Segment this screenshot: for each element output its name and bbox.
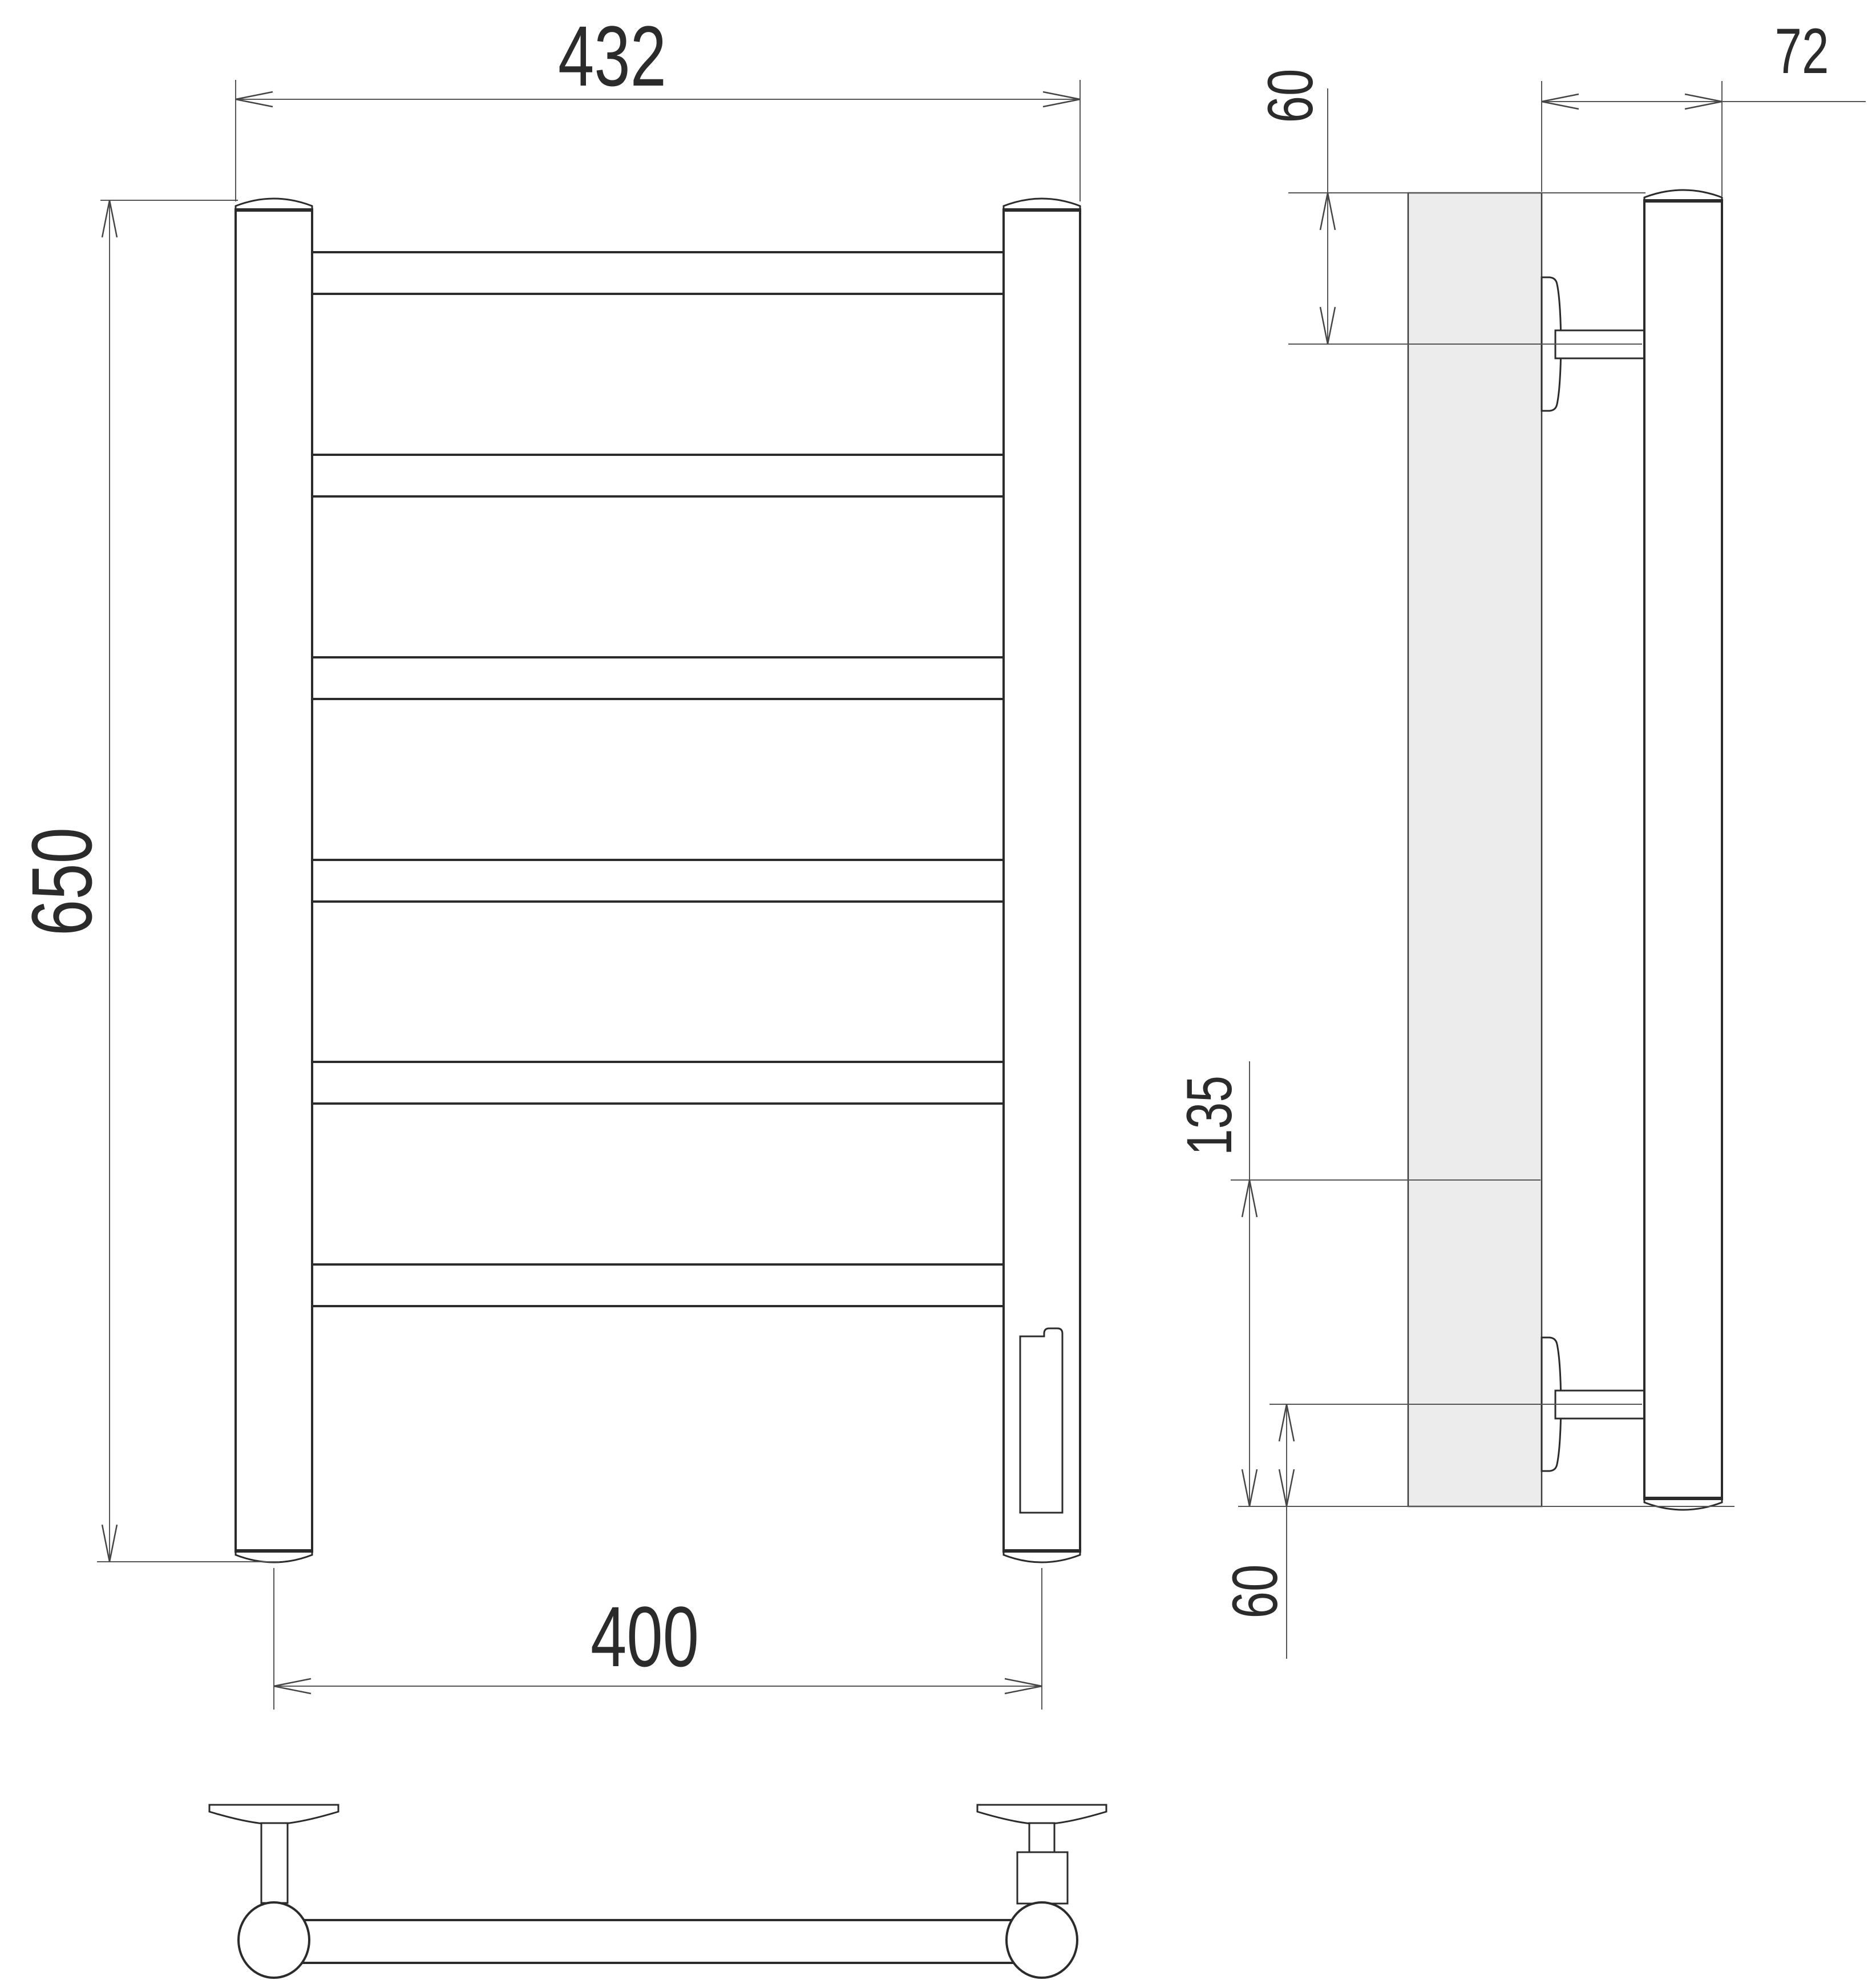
rung-5: [312, 1062, 1004, 1104]
bottom-view: [209, 1805, 1106, 1978]
rungs: [312, 252, 1004, 1306]
bottom-control-box: [1017, 1852, 1068, 1904]
bottom-left-flange: [209, 1805, 338, 1824]
rung-2: [312, 455, 1004, 496]
rung-4: [312, 860, 1004, 902]
bottom-crossbar: [297, 1920, 1021, 1963]
dim-text-top-offset: 60: [1255, 69, 1326, 123]
bottom-left-stem: [261, 1823, 288, 1903]
left-post: [236, 210, 312, 1551]
control-box: [1020, 1328, 1062, 1513]
dim-text-axis-width: 400: [591, 1589, 699, 1684]
bottom-right-tube-end: [1006, 1902, 1077, 1978]
wall-section: [1408, 193, 1542, 1506]
dim-text-front-height: 650: [14, 827, 110, 936]
side-post: [1644, 201, 1722, 1498]
dim-text-bottom-offset: 60: [1219, 1565, 1291, 1619]
bottom-left-tube-end: [238, 1902, 309, 1978]
front-view: [234, 199, 1081, 1562]
dim-text-depth: 72: [1775, 15, 1829, 87]
side-view: [1408, 190, 1723, 1510]
drawing-sheet: 432 650 400 72 60 135 60: [0, 0, 1876, 1980]
rung-1: [312, 252, 1004, 294]
dim-text-lower-span: 135: [1174, 1076, 1245, 1155]
drawing-canvas: 432 650 400 72 60 135 60: [0, 0, 1876, 1980]
rung-3: [312, 657, 1004, 699]
rung-6: [312, 1264, 1004, 1306]
bottom-right-flange: [977, 1805, 1106, 1824]
dim-text-front-width: 432: [558, 8, 666, 104]
